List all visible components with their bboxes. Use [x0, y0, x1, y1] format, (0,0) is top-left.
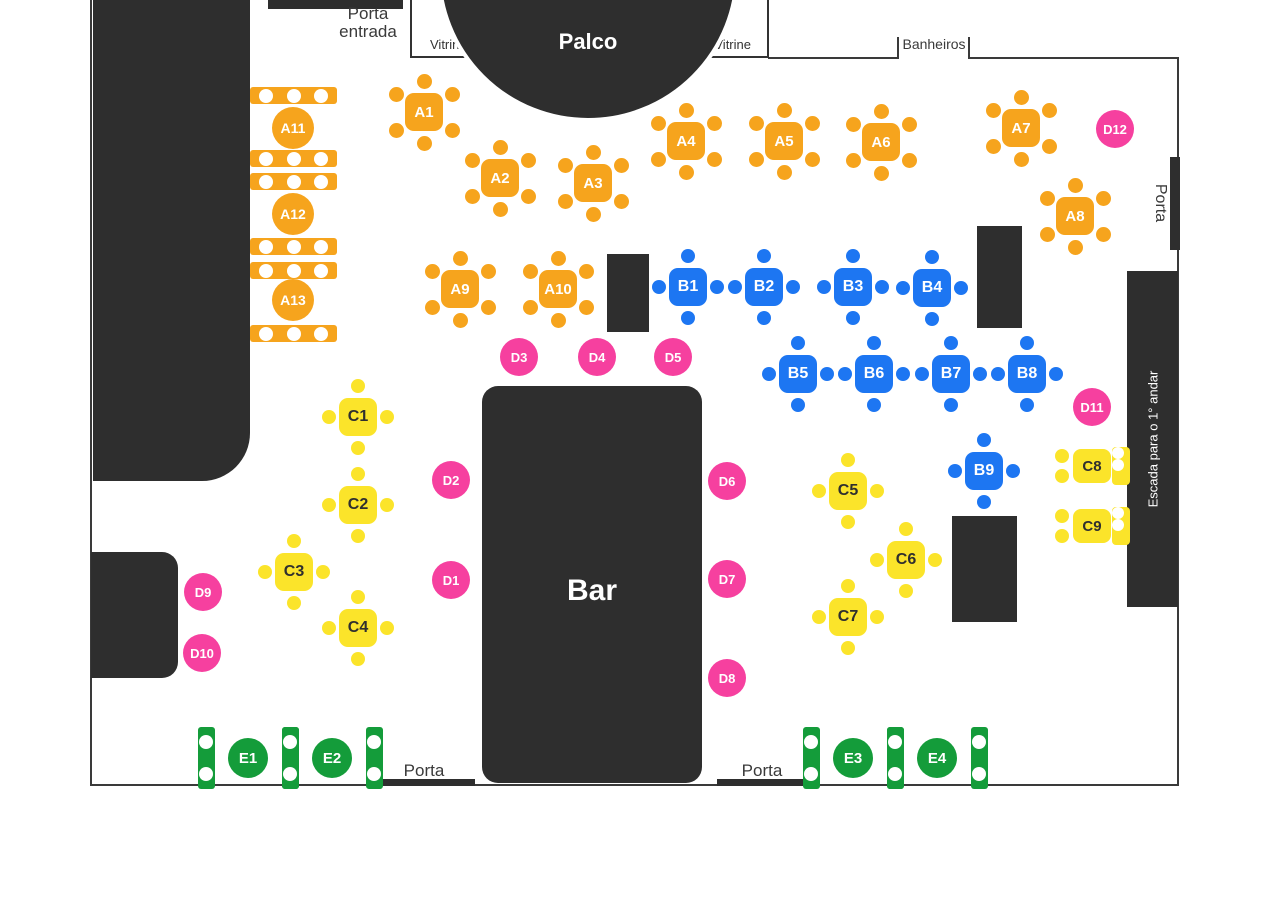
- table-D5[interactable]: D5: [654, 338, 692, 376]
- table-label: A11: [281, 120, 306, 136]
- chair-icon: [465, 153, 480, 168]
- seat-dot: [287, 264, 301, 278]
- chair-icon: [586, 145, 601, 160]
- chair-icon: [777, 103, 792, 118]
- table-label: B3: [843, 278, 863, 296]
- bench-E2: [366, 727, 383, 789]
- table-C4[interactable]: C4: [339, 609, 377, 647]
- table-label: C4: [348, 619, 368, 637]
- table-A1[interactable]: A1: [405, 93, 443, 131]
- table-C6[interactable]: C6: [887, 541, 925, 579]
- table-D9[interactable]: D9: [184, 573, 222, 611]
- chair-icon: [380, 621, 394, 635]
- table-C8[interactable]: C8: [1073, 449, 1111, 483]
- bench-E4: [971, 727, 988, 789]
- chair-icon: [896, 281, 910, 295]
- chair-icon: [977, 495, 991, 509]
- table-C5[interactable]: C5: [829, 472, 867, 510]
- seat-dot: [804, 767, 818, 781]
- chair-icon: [493, 202, 508, 217]
- seat-dot: [283, 735, 297, 749]
- chair-icon: [902, 153, 917, 168]
- chair-icon: [707, 116, 722, 131]
- chair-icon: [791, 398, 805, 412]
- table-label: A8: [1065, 208, 1084, 225]
- chair-icon: [493, 140, 508, 155]
- seat-dot: [314, 89, 328, 103]
- chair-icon: [652, 280, 666, 294]
- table-A6[interactable]: A6: [862, 123, 900, 161]
- chair-icon: [551, 313, 566, 328]
- table-A12[interactable]: A12: [272, 193, 314, 235]
- table-A11[interactable]: A11: [272, 107, 314, 149]
- table-label: D9: [195, 585, 212, 600]
- chair-icon: [380, 498, 394, 512]
- bench-A13: [250, 262, 337, 279]
- seat-dot: [283, 767, 297, 781]
- table-label: E4: [928, 750, 946, 767]
- table-label: C9: [1082, 518, 1101, 535]
- table-label: B4: [922, 279, 942, 297]
- seat-dot: [367, 767, 381, 781]
- bench-E2: [282, 727, 299, 789]
- chair-icon: [757, 311, 771, 325]
- table-label: A3: [583, 175, 602, 192]
- table-label: B2: [754, 278, 774, 296]
- chair-icon: [896, 367, 910, 381]
- chair-icon: [749, 116, 764, 131]
- chair-icon: [1006, 464, 1020, 478]
- chair-icon: [389, 87, 404, 102]
- seat-dot: [314, 152, 328, 166]
- chair-icon: [1055, 469, 1069, 483]
- table-A9[interactable]: A9: [441, 270, 479, 308]
- table-label: C1: [348, 408, 368, 426]
- chair-icon: [425, 264, 440, 279]
- chair-icon: [351, 590, 365, 604]
- table-label: A9: [450, 281, 469, 298]
- chair-icon: [351, 529, 365, 543]
- table-D7[interactable]: D7: [708, 560, 746, 598]
- table-label: D11: [1080, 400, 1103, 415]
- chair-icon: [928, 553, 942, 567]
- chair-icon: [1014, 90, 1029, 105]
- seat-dot: [199, 735, 213, 749]
- table-label: C7: [838, 608, 858, 626]
- chair-icon: [523, 300, 538, 315]
- table-B2[interactable]: B2: [745, 268, 783, 306]
- chair-icon: [791, 336, 805, 350]
- seat-dot: [972, 735, 986, 749]
- chair-icon: [870, 484, 884, 498]
- seat-dot: [287, 327, 301, 341]
- chair-icon: [453, 251, 468, 266]
- chair-icon: [867, 398, 881, 412]
- bench-A11: [250, 87, 337, 104]
- chair-icon: [558, 194, 573, 209]
- chair-icon: [875, 280, 889, 294]
- seat-dot: [314, 240, 328, 254]
- chair-icon: [762, 367, 776, 381]
- table-A7[interactable]: A7: [1002, 109, 1040, 147]
- bench-A13: [250, 325, 337, 342]
- table-label: C3: [284, 563, 304, 581]
- seat-dot: [1112, 447, 1124, 459]
- chair-icon: [1055, 529, 1069, 543]
- seat-dot: [259, 152, 273, 166]
- table-label: A7: [1011, 120, 1030, 137]
- chair-icon: [986, 103, 1001, 118]
- floor-plan: Escada para o 1° andar Vitrine Vitrine P…: [0, 0, 1280, 800]
- chair-icon: [1068, 240, 1083, 255]
- chair-icon: [651, 116, 666, 131]
- table-label: C5: [838, 482, 858, 500]
- table-D11[interactable]: D11: [1073, 388, 1111, 426]
- bench-E4: [887, 727, 904, 789]
- table-label: A13: [280, 292, 306, 308]
- table-D1[interactable]: D1: [432, 561, 470, 599]
- bench-A12: [250, 238, 337, 255]
- table-B5[interactable]: B5: [779, 355, 817, 393]
- chair-icon: [820, 367, 834, 381]
- chair-icon: [874, 104, 889, 119]
- legend: ACOUSTIC MESA PARA 6 PESSOAS MESA PARA 4…: [0, 800, 1280, 904]
- table-label: D10: [190, 646, 214, 661]
- table-A2[interactable]: A2: [481, 159, 519, 197]
- chair-icon: [523, 264, 538, 279]
- seat-dot: [287, 152, 301, 166]
- table-label: E2: [323, 750, 341, 767]
- table-D3[interactable]: D3: [500, 338, 538, 376]
- chair-icon: [287, 596, 301, 610]
- chair-icon: [846, 153, 861, 168]
- seat-dot: [972, 767, 986, 781]
- chair-icon: [786, 280, 800, 294]
- seat-dot: [287, 89, 301, 103]
- table-label: D1: [443, 573, 460, 588]
- chair-icon: [1096, 191, 1111, 206]
- bench-A11: [250, 150, 337, 167]
- seat-dot: [314, 175, 328, 189]
- table-label: B5: [788, 365, 808, 383]
- chair-icon: [841, 515, 855, 529]
- chair-icon: [817, 280, 831, 294]
- chair-icon: [389, 123, 404, 138]
- chair-icon: [521, 189, 536, 204]
- chair-icon: [1055, 449, 1069, 463]
- chair-icon: [925, 250, 939, 264]
- table-label: A2: [490, 170, 509, 187]
- table-label: D4: [589, 350, 606, 365]
- chair-icon: [899, 584, 913, 598]
- chair-icon: [681, 311, 695, 325]
- chair-icon: [445, 123, 460, 138]
- table-label: A4: [676, 133, 695, 150]
- chair-icon: [944, 336, 958, 350]
- chair-icon: [1014, 152, 1029, 167]
- chair-icon: [316, 565, 330, 579]
- table-label: D8: [719, 671, 736, 686]
- chair-icon: [614, 194, 629, 209]
- seat-dot: [888, 767, 902, 781]
- table-label: D12: [1103, 122, 1127, 137]
- table-A4[interactable]: A4: [667, 122, 705, 160]
- table-C9[interactable]: C9: [1073, 509, 1111, 543]
- seat-dot: [367, 735, 381, 749]
- table-E2[interactable]: E2: [312, 738, 352, 778]
- bench-A12: [250, 173, 337, 190]
- chair-icon: [749, 152, 764, 167]
- chair-icon: [586, 207, 601, 222]
- chair-icon: [579, 300, 594, 315]
- chair-icon: [322, 621, 336, 635]
- table-A13[interactable]: A13: [272, 279, 314, 321]
- chair-icon: [870, 610, 884, 624]
- seat-dot: [888, 735, 902, 749]
- chair-icon: [838, 367, 852, 381]
- bench-C8: [1112, 447, 1130, 485]
- table-label: D6: [719, 474, 736, 489]
- table-D10[interactable]: D10: [183, 634, 221, 672]
- chair-icon: [614, 158, 629, 173]
- table-label: E3: [844, 750, 862, 767]
- chair-icon: [351, 441, 365, 455]
- chair-icon: [651, 152, 666, 167]
- seat-dot: [314, 264, 328, 278]
- chair-icon: [973, 367, 987, 381]
- venue-map-canvas: Escada para o 1° andar Vitrine Vitrine P…: [0, 0, 1280, 904]
- table-label: D3: [511, 350, 528, 365]
- chair-icon: [445, 87, 460, 102]
- table-label: C2: [348, 496, 368, 514]
- seat-dot: [804, 735, 818, 749]
- table-label: C6: [896, 551, 916, 569]
- table-B1[interactable]: B1: [669, 268, 707, 306]
- chair-icon: [1040, 191, 1055, 206]
- chair-icon: [417, 74, 432, 89]
- table-B3[interactable]: B3: [834, 268, 872, 306]
- table-label: A1: [414, 104, 433, 121]
- table-label: B8: [1017, 365, 1037, 383]
- table-B7[interactable]: B7: [932, 355, 970, 393]
- chair-icon: [944, 398, 958, 412]
- chair-icon: [777, 165, 792, 180]
- chair-icon: [351, 379, 365, 393]
- table-D2[interactable]: D2: [432, 461, 470, 499]
- chair-icon: [874, 166, 889, 181]
- chair-icon: [558, 158, 573, 173]
- table-label: A6: [871, 134, 890, 151]
- table-E3[interactable]: E3: [833, 738, 873, 778]
- table-B4[interactable]: B4: [913, 269, 951, 307]
- chair-icon: [954, 281, 968, 295]
- table-label: D7: [719, 572, 736, 587]
- chair-icon: [805, 116, 820, 131]
- chair-icon: [846, 249, 860, 263]
- table-B8[interactable]: B8: [1008, 355, 1046, 393]
- table-A8[interactable]: A8: [1056, 197, 1094, 235]
- chair-icon: [870, 553, 884, 567]
- table-E1[interactable]: E1: [228, 738, 268, 778]
- table-E4[interactable]: E4: [917, 738, 957, 778]
- chair-icon: [481, 264, 496, 279]
- chair-icon: [322, 410, 336, 424]
- table-label: B6: [864, 365, 884, 383]
- chair-icon: [805, 152, 820, 167]
- table-A5[interactable]: A5: [765, 122, 803, 160]
- chair-icon: [380, 410, 394, 424]
- table-D8[interactable]: D8: [708, 659, 746, 697]
- chair-icon: [948, 464, 962, 478]
- chair-icon: [915, 367, 929, 381]
- seat-dot: [287, 240, 301, 254]
- chair-icon: [579, 264, 594, 279]
- chair-icon: [1049, 367, 1063, 381]
- table-label: C8: [1082, 458, 1101, 475]
- table-C1[interactable]: C1: [339, 398, 377, 436]
- chair-icon: [679, 103, 694, 118]
- table-label: E1: [239, 750, 257, 767]
- table-D12[interactable]: D12: [1096, 110, 1134, 148]
- seat-dot: [1112, 459, 1124, 471]
- chair-icon: [707, 152, 722, 167]
- chair-icon: [812, 610, 826, 624]
- seat-dot: [314, 327, 328, 341]
- chair-icon: [846, 117, 861, 132]
- chair-icon: [1042, 139, 1057, 154]
- table-B6[interactable]: B6: [855, 355, 893, 393]
- chair-icon: [1040, 227, 1055, 242]
- table-D6[interactable]: D6: [708, 462, 746, 500]
- seat-dot: [259, 175, 273, 189]
- bench-E3: [803, 727, 820, 789]
- seat-dot: [1112, 519, 1124, 531]
- chair-icon: [841, 641, 855, 655]
- chair-icon: [551, 251, 566, 266]
- chair-icon: [351, 652, 365, 666]
- table-C3[interactable]: C3: [275, 553, 313, 591]
- chair-icon: [986, 139, 1001, 154]
- seat-dot: [1112, 507, 1124, 519]
- chair-icon: [1068, 178, 1083, 193]
- chair-icon: [757, 249, 771, 263]
- table-label: B7: [941, 365, 961, 383]
- chair-icon: [521, 153, 536, 168]
- chair-icon: [812, 484, 826, 498]
- chair-icon: [465, 189, 480, 204]
- table-label: B1: [678, 278, 698, 296]
- table-label: A12: [280, 206, 306, 222]
- chair-icon: [902, 117, 917, 132]
- seat-dot: [199, 767, 213, 781]
- chair-icon: [1096, 227, 1111, 242]
- table-C7[interactable]: C7: [829, 598, 867, 636]
- seat-dot: [259, 89, 273, 103]
- chair-icon: [899, 522, 913, 536]
- table-B9[interactable]: B9: [965, 452, 1003, 490]
- table-label: A5: [774, 133, 793, 150]
- table-label: D2: [443, 473, 460, 488]
- chair-icon: [1042, 103, 1057, 118]
- seat-dot: [287, 175, 301, 189]
- chair-icon: [287, 534, 301, 548]
- seat-dot: [259, 327, 273, 341]
- chair-icon: [425, 300, 440, 315]
- chair-icon: [481, 300, 496, 315]
- chair-icon: [841, 453, 855, 467]
- seat-dot: [259, 240, 273, 254]
- chair-icon: [991, 367, 1005, 381]
- chair-icon: [1020, 398, 1034, 412]
- chair-icon: [841, 579, 855, 593]
- chair-icon: [925, 312, 939, 326]
- chair-icon: [846, 311, 860, 325]
- seat-dot: [259, 264, 273, 278]
- table-label: D5: [665, 350, 682, 365]
- table-D4[interactable]: D4: [578, 338, 616, 376]
- chair-icon: [867, 336, 881, 350]
- chair-icon: [681, 249, 695, 263]
- tables-layer: A1A2A3A4A5A6A7A8A9A10A11A12A13B1B2B3B4B5…: [0, 0, 1280, 800]
- table-label: B9: [974, 462, 994, 480]
- table-C2[interactable]: C2: [339, 486, 377, 524]
- bench-C9: [1112, 507, 1130, 545]
- chair-icon: [679, 165, 694, 180]
- table-A3[interactable]: A3: [574, 164, 612, 202]
- bench-E1: [198, 727, 215, 789]
- chair-icon: [728, 280, 742, 294]
- chair-icon: [417, 136, 432, 151]
- chair-icon: [710, 280, 724, 294]
- chair-icon: [351, 467, 365, 481]
- chair-icon: [453, 313, 468, 328]
- chair-icon: [322, 498, 336, 512]
- chair-icon: [1055, 509, 1069, 523]
- chair-icon: [258, 565, 272, 579]
- chair-icon: [1020, 336, 1034, 350]
- table-label: A10: [544, 281, 572, 298]
- table-A10[interactable]: A10: [539, 270, 577, 308]
- chair-icon: [977, 433, 991, 447]
